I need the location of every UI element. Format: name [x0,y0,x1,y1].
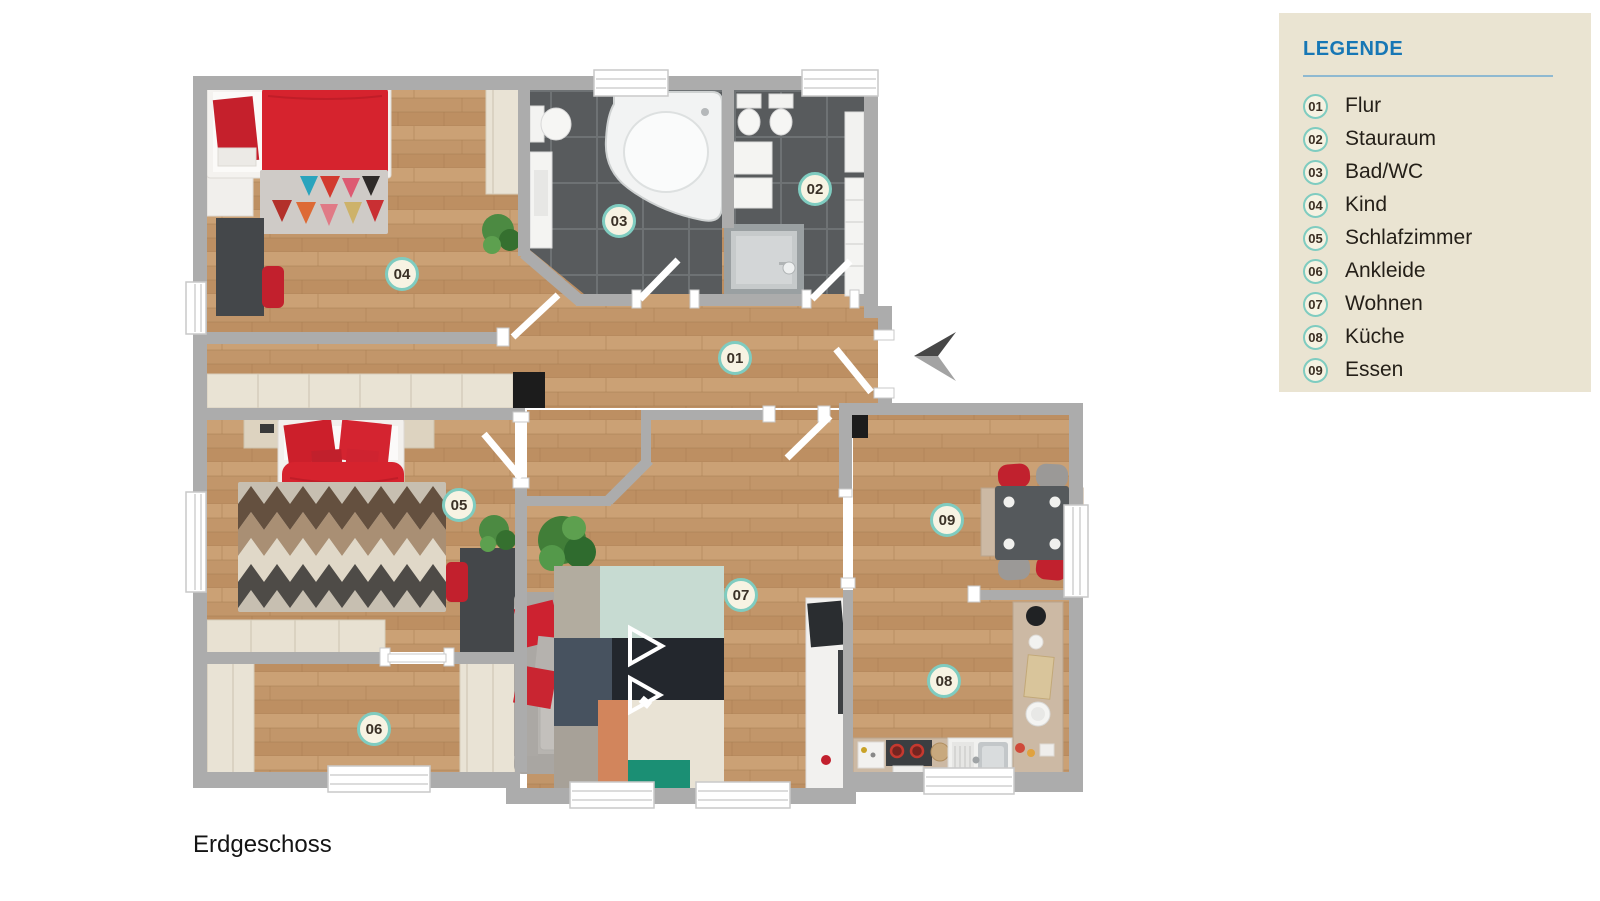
legend-item-number: 06 [1303,259,1328,284]
window [802,70,878,96]
storage-cabinet [845,112,864,172]
legend-panel: LEGENDE 01 Flur 02 Stauraum 03 Bad/WC 04… [1279,13,1591,392]
kids-desk [216,218,264,316]
legend-item: 03 Bad/WC [1303,159,1591,185]
room-marker-stauraum: 02 [798,172,832,206]
window [924,768,1014,794]
legend-item-label: Küche [1345,325,1405,349]
legend-item: 06 Ankleide [1303,258,1591,284]
legend-item-number: 09 [1303,358,1328,383]
room-marker-bad-wc: 03 [602,204,636,238]
legend-item-number: 07 [1303,292,1328,317]
legend-item: 04 Kind [1303,192,1591,218]
storage-cabinet [732,142,772,174]
faucet [973,757,980,764]
kids-shelf [218,148,256,166]
bedroom-bench [207,620,385,656]
dining-table [995,486,1069,560]
entrance-arrow-icon [914,332,956,381]
bathroom-vanity [530,152,552,248]
window [594,70,668,96]
legend-item-label: Kind [1345,193,1387,217]
tv-lowboard [806,598,846,790]
shower [724,224,804,296]
legend-item-number: 05 [1303,226,1328,251]
room-marker-flur: 01 [718,341,752,375]
toilet [530,106,571,142]
bidet [769,94,793,135]
room-marker-kueche: 08 [927,664,961,698]
legend-item-number: 03 [1303,160,1328,185]
legend-item: 05 Schlafzimmer [1303,225,1591,251]
small-appliance [858,742,884,768]
room-marker-schlafzimmer: 05 [442,488,476,522]
floor-plan-page: 01 02 03 04 05 06 07 08 09 LEGENDE 01 Fl… [0,0,1600,901]
floor-label: Erdgeschoss [193,831,332,859]
window [570,782,654,808]
hallway-closet [207,374,513,408]
window [696,782,790,808]
legend-item: 08 Küche [1303,324,1591,350]
kids-desk-chair [262,266,284,308]
tv-screen [807,601,845,648]
living-rug [554,566,724,788]
legend-item-label: Bad/WC [1345,160,1423,184]
kettle [1026,606,1046,626]
legend-title: LEGENDE [1303,38,1591,61]
bedroom-desk [460,548,518,652]
kids-rug [260,170,388,234]
wardrobe [200,662,254,784]
legend-item-number: 08 [1303,325,1328,350]
legend-item-number: 04 [1303,193,1328,218]
room-marker-kind: 04 [385,257,419,291]
room-marker-wohnen: 07 [724,578,758,612]
room-marker-ankleide: 06 [357,712,391,746]
legend-item-label: Schlafzimmer [1345,226,1472,250]
dining-bench [981,488,995,556]
wardrobe [460,662,515,784]
storage-cabinet [732,178,772,208]
legend-item: 07 Wohnen [1303,291,1591,317]
legend-list: 01 Flur 02 Stauraum 03 Bad/WC 04 Kind 05… [1303,93,1591,383]
storage-shelf [845,178,864,296]
bedroom-rug [238,482,446,612]
dining-chair [997,463,1031,489]
legend-divider [1303,75,1553,77]
legend-item: 01 Flur [1303,93,1591,119]
legend-item: 02 Stauraum [1303,126,1591,152]
cutting-board [1024,655,1054,699]
legend-item-label: Wohnen [1345,292,1423,316]
shoe-cabinet [513,372,545,408]
shower-head [783,262,795,274]
legend-item-label: Ankleide [1345,259,1426,283]
window [328,766,430,792]
bathtub-faucet [701,108,709,116]
legend-item-label: Flur [1345,94,1381,118]
legend-item-number: 01 [1303,94,1328,119]
window [1064,505,1088,597]
legend-item-label: Essen [1345,358,1403,382]
legend-item: 09 Essen [1303,357,1591,383]
toilet [737,94,761,135]
dining-chair [1035,463,1068,489]
room-marker-essen: 09 [930,503,964,537]
cutting-board-round [931,743,949,761]
bedroom-desk-chair [446,562,468,602]
legend-item-number: 02 [1303,127,1328,152]
legend-item-label: Stauraum [1345,127,1436,151]
shoe-cabinet [852,414,868,438]
